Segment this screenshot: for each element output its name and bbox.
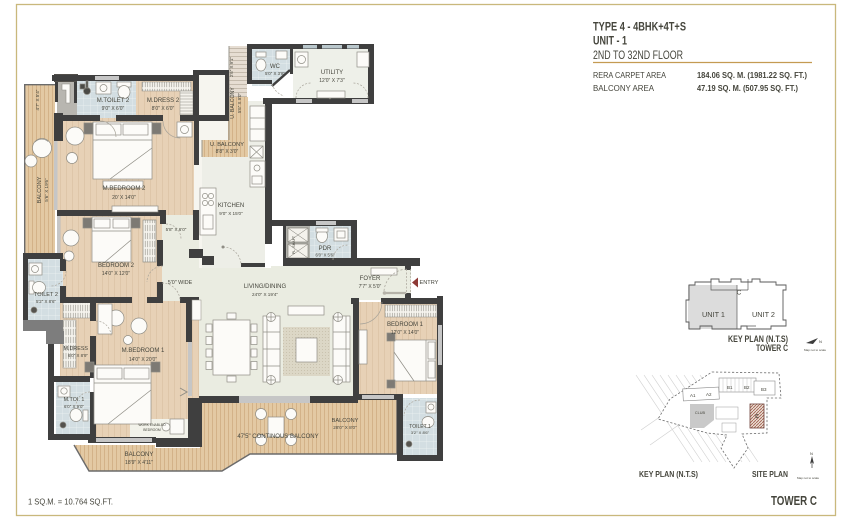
svg-text:WORK ENABLED: WORK ENABLED [138, 423, 166, 427]
svg-text:5'6" X 19'6": 5'6" X 19'6" [44, 178, 49, 202]
svg-text:BALCONY: BALCONY [37, 176, 43, 203]
svg-text:UNIT 2: UNIT 2 [752, 310, 775, 319]
svg-text:18'9" X 4'11": 18'9" X 4'11" [125, 460, 153, 466]
svg-text:TOWER C: TOWER C [771, 494, 817, 508]
svg-text:M.TOI. 1: M.TOI. 1 [64, 397, 85, 403]
svg-text:28'0" X 8'0": 28'0" X 8'0" [333, 425, 357, 430]
svg-text:12'0" X 14'0": 12'0" X 14'0" [391, 330, 419, 336]
svg-text:N: N [819, 339, 822, 344]
svg-text:7'7" X 5'0": 7'7" X 5'0" [359, 284, 382, 290]
svg-text:9'0" X 6'0": 9'0" X 6'0" [102, 106, 125, 112]
svg-text:UNIT - 1: UNIT - 1 [593, 34, 627, 48]
svg-text:BEDROOM: BEDROOM [143, 428, 161, 432]
svg-text:PDR: PDR [319, 246, 332, 252]
svg-text:C: C [737, 290, 742, 297]
svg-text:9'0" X 15'0": 9'0" X 15'0" [219, 211, 243, 216]
svg-text:47.19 SQ. M. (507.95 SQ. FT.): 47.19 SQ. M. (507.95 SQ. FT.) [697, 83, 798, 93]
svg-text:RERA CARPET AREA: RERA CARPET AREA [593, 70, 666, 80]
svg-text:2'6" X 9'1": 2'6" X 9'1" [229, 57, 234, 77]
svg-text:14'0" X 12'0": 14'0" X 12'0" [102, 271, 130, 277]
svg-text:5'2" X 8'6": 5'2" X 8'6" [36, 299, 56, 304]
svg-text:KEY PLAN (N.T.S): KEY PLAN (N.T.S) [639, 469, 698, 479]
svg-text:U. BALCONY: U. BALCONY [230, 87, 236, 119]
svg-text:SITE PLAN: SITE PLAN [752, 469, 788, 479]
svg-text:LIVING/DINING: LIVING/DINING [244, 284, 287, 290]
svg-text:N: N [810, 451, 813, 456]
svg-text:M.BEDROOM 1: M.BEDROOM 1 [122, 348, 165, 354]
svg-text:A2: A2 [706, 392, 712, 397]
svg-text:M.DRESS 1: M.DRESS 1 [63, 346, 92, 352]
svg-text:6'0" X 5'6": 6'0" X 5'6" [315, 253, 335, 258]
svg-text:184.06 SQ. M. (1981.22 SQ. FT.: 184.06 SQ. M. (1981.22 SQ. FT.) [697, 70, 807, 80]
svg-text:14'0" X 20'0": 14'0" X 20'0" [129, 357, 157, 363]
svg-text:1 SQ.M. = 10.764 SQ.FT.: 1 SQ.M. = 10.764 SQ.FT. [28, 498, 113, 507]
svg-text:BALCONY AREA: BALCONY AREA [593, 83, 654, 93]
svg-text:M.DRESS 2: M.DRESS 2 [147, 98, 180, 104]
svg-text:UNIT 1: UNIT 1 [702, 310, 725, 319]
svg-text:A1: A1 [690, 393, 696, 398]
svg-text:20' X 14'0": 20' X 14'0" [112, 195, 136, 201]
svg-text:5'0" WIDE: 5'0" WIDE [168, 280, 193, 286]
svg-text:47'5" CONTINOUS BALCONY: 47'5" CONTINOUS BALCONY [237, 434, 318, 440]
svg-text:FOYER: FOYER [360, 276, 381, 282]
svg-text:BALCONY: BALCONY [125, 452, 154, 458]
svg-text:PL. SHAFT: PL. SHAFT [292, 235, 296, 254]
svg-text:2ND TO 32ND FLOOR: 2ND TO 32ND FLOOR [593, 48, 683, 62]
svg-text:KITCHEN: KITCHEN [218, 203, 244, 209]
svg-text:C: C [755, 414, 759, 420]
svg-text:M.TOILET 2: M.TOILET 2 [97, 98, 130, 104]
svg-text:ENTRY: ENTRY [420, 280, 439, 286]
svg-text:12'0" X 7'3": 12'0" X 7'3" [319, 78, 345, 84]
svg-text:8'8" X 3'0": 8'8" X 3'0" [216, 149, 239, 155]
svg-text:B3: B3 [761, 387, 767, 392]
svg-text:CLUB: CLUB [695, 411, 706, 415]
svg-text:4'7" X 5'4": 4'7" X 5'4" [35, 89, 40, 110]
svg-text:Map not to scale: Map not to scale [804, 348, 826, 352]
svg-text:8'0" X 6'0": 8'0" X 6'0" [152, 106, 175, 112]
svg-text:Map not to scale: Map not to scale [797, 476, 819, 480]
svg-text:TOWER C: TOWER C [756, 343, 788, 353]
svg-text:5'6" X 9'0": 5'6" X 9'0" [237, 93, 242, 113]
svg-text:6'0" X 9'0": 6'0" X 9'0" [64, 404, 84, 409]
svg-text:U. BALCONY: U. BALCONY [210, 142, 244, 148]
svg-text:24'0" X 19'4": 24'0" X 19'4" [252, 292, 278, 297]
svg-text:TOILET 2: TOILET 2 [34, 292, 58, 298]
svg-text:BEDROOM 1: BEDROOM 1 [387, 322, 424, 328]
svg-text:BEDROOM 2: BEDROOM 2 [98, 263, 135, 269]
svg-text:5'0" X 3'8": 5'0" X 3'8" [265, 71, 285, 76]
svg-text:5'8" X 6'0": 5'8" X 6'0" [166, 227, 187, 232]
svg-text:B1: B1 [727, 385, 733, 390]
svg-text:M.BEDROOM 2: M.BEDROOM 2 [103, 186, 146, 192]
svg-text:BALCONY: BALCONY [332, 418, 359, 424]
svg-text:3'2" X 8'6": 3'2" X 8'6" [411, 430, 430, 435]
svg-text:6'0" X 8'9": 6'0" X 8'9" [68, 353, 88, 358]
svg-text:WC: WC [270, 64, 281, 70]
svg-text:TYPE 4 - 4BHK+4T+S: TYPE 4 - 4BHK+4T+S [593, 20, 686, 34]
svg-text:B2: B2 [744, 385, 750, 390]
svg-text:UTILITY: UTILITY [321, 70, 343, 76]
